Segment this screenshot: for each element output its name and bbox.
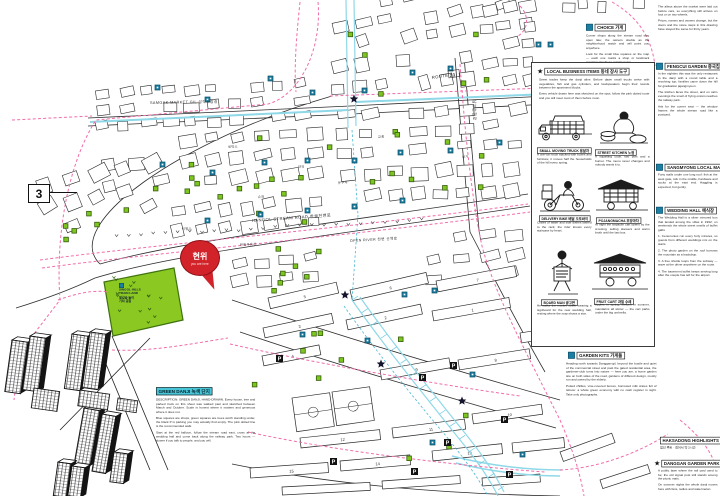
market-poi-icon[interactable]	[656, 164, 663, 171]
poi-icon-dot	[354, 160, 356, 162]
small-map-label: 문구사	[338, 179, 348, 185]
building	[309, 197, 321, 207]
tree-icon	[282, 192, 287, 197]
tree-icon	[316, 376, 321, 381]
column-paragraph: Forty stalls under one long roof: fish a…	[658, 173, 718, 189]
cart-caption: At night the tarpaulin cart opens by the…	[595, 223, 650, 235]
building	[230, 273, 248, 288]
tree-icon	[195, 181, 200, 186]
small-map-label: 교회	[378, 134, 385, 139]
building	[120, 86, 135, 98]
stream-hatch	[488, 473, 494, 477]
building	[433, 190, 448, 199]
building	[218, 221, 232, 233]
building	[360, 129, 372, 137]
building	[63, 193, 82, 212]
building	[95, 89, 109, 99]
building	[205, 152, 222, 167]
parking-letter: P	[452, 364, 456, 370]
poi-icon-dot	[450, 150, 452, 152]
you-are-here-balloon[interactable]: 현위 you are here	[180, 240, 218, 276]
grass-mark	[115, 234, 118, 236]
building	[281, 167, 300, 182]
building	[120, 103, 135, 114]
tree-icon	[87, 211, 92, 216]
building	[375, 78, 387, 90]
building	[272, 81, 282, 90]
tree-icon	[398, 337, 403, 342]
poi-icon-dot	[307, 160, 309, 162]
grass-mark	[112, 276, 115, 278]
building	[402, 0, 414, 2]
grass-mark	[322, 224, 325, 226]
small-map-label: 한일부동산	[240, 241, 257, 247]
building	[479, 229, 496, 240]
building	[502, 74, 517, 86]
building	[229, 169, 249, 186]
small-map-label: 세탁소	[228, 143, 238, 149]
tree-icon	[407, 456, 412, 461]
tree-icon	[272, 288, 277, 293]
building	[102, 180, 116, 193]
walking-route	[230, 344, 520, 396]
building	[503, 183, 520, 199]
building	[140, 85, 152, 95]
tree-icon	[379, 92, 384, 97]
grass-mark	[237, 230, 240, 232]
star-icon	[341, 291, 350, 299]
sheet-number-leader-line	[49, 192, 77, 193]
tree-icon	[318, 331, 323, 336]
board-man-illustration	[544, 249, 580, 297]
section-title: SANGMYONG LOCAL MARKET 재래시장	[665, 164, 720, 171]
tree-icon	[276, 247, 281, 252]
section-wedding-body: The Wedding Hall is a silver mirrored bo…	[658, 216, 720, 319]
apartment-towers-inset	[5, 328, 168, 496]
tree-icon	[299, 175, 304, 180]
building	[128, 157, 145, 170]
column-paragraph: The Wedding Hall is a silver mirrored bo…	[658, 216, 718, 232]
building	[331, 84, 344, 94]
building	[232, 257, 247, 269]
park-label: SINGOL HILLS TRAIN LAND 철길숲 놀이 기차 공원	[119, 283, 179, 316]
danggan-park-body: A public lawn where the rail yard used t…	[658, 469, 720, 496]
building	[482, 102, 495, 113]
business-intro-paragraph: Street trades keep the danji alive. Befo…	[539, 78, 649, 90]
tree-icon	[316, 249, 321, 254]
poi-icon-dot	[207, 220, 209, 222]
parking-letter: P	[421, 376, 425, 382]
star-icon: ★	[654, 460, 660, 467]
tree-icon	[484, 78, 489, 83]
building	[503, 58, 518, 66]
building	[361, 147, 374, 158]
section-market-body: Forty stalls under one long roof: fish a…	[658, 173, 720, 203]
poi-icon-dot	[157, 87, 159, 89]
poi-icon-dot	[402, 200, 404, 202]
building	[578, 0, 588, 9]
building	[162, 85, 175, 93]
building	[140, 198, 157, 214]
tree-icon	[395, 132, 400, 137]
stream-hatch	[391, 347, 397, 351]
building	[118, 121, 128, 131]
building	[356, 33, 370, 47]
tree-icon	[124, 208, 129, 213]
building	[447, 4, 463, 17]
star-icon: ★	[537, 68, 543, 75]
tree-icon	[237, 186, 242, 191]
garden-kits-paragraph: Potted chillies, vine-covered fences, bo…	[566, 385, 657, 397]
low-block	[31, 388, 60, 411]
building	[456, 188, 469, 198]
building	[114, 161, 131, 177]
wedding-hall-poi-icon[interactable]	[656, 207, 663, 214]
building	[194, 201, 212, 212]
tree-icon	[301, 349, 306, 354]
poi-icon-dot	[400, 152, 402, 154]
poi-icon-dot	[499, 142, 501, 144]
fruit-cart-illustration	[590, 249, 650, 295]
building	[434, 105, 449, 117]
tree-icon	[293, 264, 298, 269]
section-title: FENGCUI GARDEN 중국집	[665, 63, 720, 70]
tree-icon	[218, 195, 223, 200]
grass-mark	[396, 221, 399, 223]
danji-note-title: GREEN DANJI 녹색 단지	[156, 387, 212, 395]
playground-court	[332, 387, 374, 426]
building	[504, 229, 523, 242]
map-sheet-number: 3	[28, 184, 50, 203]
route-number: 23	[449, 72, 456, 78]
stream-dashed	[352, 215, 358, 300]
building	[257, 275, 272, 287]
poi-icon-dot	[354, 206, 356, 208]
poi-icon-dot	[450, 68, 452, 70]
building	[377, 14, 391, 24]
building	[336, 128, 348, 140]
building	[285, 198, 302, 213]
poi-icon-dot	[538, 44, 540, 46]
building	[307, 147, 324, 160]
grass-mark	[335, 223, 338, 225]
building	[153, 174, 170, 187]
building	[184, 85, 200, 97]
building	[418, 74, 431, 90]
poi-icon-dot	[162, 164, 164, 166]
garden-poi-icon[interactable]	[568, 352, 575, 359]
parking-letter: P	[413, 470, 417, 476]
building	[255, 259, 270, 269]
column-paragraph: Prices, names and owners change, but the…	[658, 19, 718, 31]
building	[307, 166, 323, 180]
tree-icon	[370, 179, 375, 184]
you-are-here-korean: 현위	[193, 251, 208, 262]
building	[449, 23, 466, 37]
highlights-body: 점선 루트 · 걸어서 약 2시간	[660, 446, 720, 456]
hand-drawn-neighborhood-map: 567321498121110151413 PPPPPPPP HANGOL ST…	[0, 0, 720, 496]
poi-icon-dot	[212, 172, 214, 174]
small-map-label: 약국	[298, 164, 305, 169]
stream-hatch	[362, 309, 368, 313]
building	[228, 151, 243, 166]
building	[307, 127, 324, 141]
building	[482, 4, 498, 17]
tree-icon	[327, 145, 332, 150]
apartment-slab	[282, 482, 370, 495]
danji-paragraph: Start at the red balloon, follow the str…	[156, 431, 255, 443]
section-title: DANGGAN GARDEN PARK 공원	[661, 460, 720, 467]
balloon-bubble: 현위 you are here	[180, 240, 220, 276]
bike-caption: Crates of water and side dishes lashed t…	[537, 221, 592, 233]
poi-icon-dot	[364, 90, 366, 92]
star-icon	[458, 397, 467, 405]
building	[294, 96, 311, 106]
building	[280, 130, 297, 139]
walking-route	[58, 291, 108, 300]
building	[251, 82, 265, 93]
building	[459, 51, 472, 64]
grass-mark	[164, 231, 167, 233]
tree-icon	[270, 177, 275, 182]
low-block	[116, 398, 137, 413]
tree-icon	[348, 32, 353, 37]
small-map-label: 이발소	[182, 225, 192, 231]
column-paragraph: Ask for the corner seat — the window fra…	[658, 105, 718, 117]
tree-icon	[304, 274, 309, 279]
walking-route	[40, 204, 528, 260]
apartment-tower	[110, 448, 134, 484]
grass-mark	[347, 223, 350, 225]
building	[633, 0, 644, 8]
walking-route	[12, 116, 92, 120]
poi-icon-dot	[270, 78, 272, 80]
apartment-slab	[512, 438, 565, 453]
garden-kits-title: GARDEN KITS 가게들	[577, 352, 625, 359]
poi-icon-dot	[367, 340, 369, 342]
tree-icon	[189, 162, 194, 167]
tree-icon	[339, 358, 344, 363]
tree-icon	[479, 154, 484, 159]
delivery-bike-illustration	[538, 179, 590, 213]
building	[506, 247, 526, 262]
building	[482, 57, 499, 70]
stream-hatch	[430, 397, 436, 401]
building	[409, 108, 424, 119]
building	[241, 201, 255, 216]
poi-icon-dot	[550, 44, 552, 46]
tree-icon	[257, 136, 262, 141]
column-list-item: 4. The basement buffet keeps serving lon…	[658, 270, 718, 278]
poi-icon-dot	[432, 442, 434, 444]
right-column-top-text: The alleys above the market were laid ou…	[658, 5, 720, 52]
building	[396, 54, 410, 66]
you-are-here-english: you are here	[191, 262, 209, 266]
tree-icon	[409, 177, 414, 182]
poi-icon-dot	[302, 334, 304, 336]
danji-note-body: DESCRIPTION: GREEN DANJI, HAND-DRAWN. Ev…	[156, 398, 316, 474]
poi-icon-dot	[312, 92, 314, 94]
parking-letter: P	[503, 418, 507, 424]
park-name-line4: 기차 공원	[119, 300, 131, 304]
grass-mark	[127, 234, 130, 236]
tree-icon	[153, 186, 158, 191]
stream-hatch	[381, 334, 387, 338]
tree-icon	[72, 229, 77, 234]
building	[522, 39, 534, 48]
building	[435, 126, 451, 137]
danji-paragraph: Blue squares are shops, green squares ar…	[156, 417, 255, 429]
parking-letter: P	[278, 357, 282, 363]
building	[218, 202, 232, 217]
top-note-title: CHOICE 가게	[595, 24, 626, 31]
parking-letter: P	[446, 441, 450, 447]
building	[410, 126, 428, 136]
column-paragraph: In the eighties this was the only restau…	[658, 72, 718, 88]
building	[409, 143, 427, 155]
column-list-item: 2. The photo garden on the roof borrows …	[658, 249, 718, 257]
poi-icon-dot	[404, 294, 406, 296]
building	[459, 123, 474, 134]
building	[281, 147, 296, 160]
tree-icon	[461, 81, 466, 86]
tree-icon	[189, 176, 194, 181]
section-fengcui-body: In the eighties this was the only restau…	[658, 72, 720, 148]
column-paragraph: 점선 루트 · 걸어서 약 2시간	[660, 446, 717, 450]
building	[304, 251, 317, 261]
building	[337, 148, 351, 158]
building	[503, 162, 520, 178]
building	[457, 140, 471, 148]
column-paragraph: The kitchen faces the street, and on cal…	[658, 91, 718, 103]
building	[354, 56, 370, 73]
stream-hatch	[440, 410, 446, 414]
grass-mark	[139, 234, 142, 236]
tree-icon	[363, 53, 368, 58]
vendor-caption: A squatting cook, two pots and a burner.…	[595, 155, 650, 167]
moving-truck-illustration	[536, 113, 592, 143]
grass-mark	[420, 218, 423, 220]
building	[453, 254, 469, 263]
street-vendor-illustration	[594, 109, 650, 145]
business-intro-paragraph: Every vehicle drawn here was sketched on…	[539, 92, 649, 100]
building	[484, 139, 498, 150]
building	[598, 1, 607, 12]
building	[355, 17, 373, 29]
column-list-item: 1. Ceremonies run every forty minutes, s…	[658, 235, 718, 247]
shop-poi-icon[interactable]	[586, 24, 593, 31]
vertical-road-label: 남부순환로	[472, 100, 478, 120]
building	[364, 188, 382, 202]
tree-icon	[390, 171, 395, 176]
building	[178, 134, 197, 149]
building	[254, 148, 272, 161]
pojangmacha-illustration	[592, 177, 650, 215]
garden-kits-body: Heading north towards Danggan-gil, beyon…	[566, 362, 712, 422]
building	[427, 254, 441, 265]
building	[279, 255, 294, 265]
building	[508, 140, 521, 148]
tree-icon	[252, 382, 257, 387]
poi-icon-dot	[434, 290, 436, 292]
grass-mark	[383, 221, 386, 223]
building	[424, 11, 439, 25]
boardman-caption: He walks the market street wearing a sig…	[537, 304, 592, 316]
tree-icon	[185, 189, 190, 194]
poi-icon-dot	[260, 214, 262, 216]
star-icon	[377, 360, 386, 368]
building	[88, 189, 105, 205]
tree-icon	[64, 237, 69, 242]
small-map-label: 상가	[462, 154, 469, 159]
parking-letter: P	[332, 460, 336, 466]
garden-kits-paragraph: Heading north towards Danggan-gil, beyon…	[566, 362, 657, 382]
tree-icon	[464, 413, 469, 418]
tree-icon	[254, 184, 259, 189]
building	[207, 118, 221, 128]
building	[331, 58, 349, 73]
poi-icon-dot	[412, 72, 414, 74]
stream-hatch	[459, 435, 465, 439]
building	[496, 21, 511, 31]
poi-icon-dot	[307, 210, 309, 212]
building	[426, 29, 437, 39]
building	[411, 186, 426, 200]
building	[172, 206, 186, 216]
building	[459, 105, 474, 117]
building	[231, 132, 244, 143]
building	[204, 175, 216, 184]
truck-caption: A one-ton truck stacked with boxes and f…	[537, 153, 592, 165]
grass-mark	[152, 232, 155, 234]
building	[97, 105, 110, 116]
tree-icon	[443, 186, 448, 191]
tree-icon	[478, 185, 483, 190]
building	[205, 85, 215, 92]
apartment-slab	[382, 476, 460, 489]
poi-icon-dot	[264, 162, 266, 164]
road-line	[16, 278, 95, 308]
column-list-item: 3. A free shuttle loops from the subway …	[658, 259, 718, 267]
column-paragraph: A public lawn where the rail yard used t…	[658, 469, 718, 481]
grass-mark	[408, 219, 411, 221]
apartment-slab	[600, 465, 650, 489]
building	[205, 132, 218, 142]
river-walk-label: OPEN RIVER 천변 산책로	[350, 236, 398, 243]
building	[361, 107, 380, 120]
column-paragraph: On summer nights the whole danji moves h…	[658, 483, 718, 491]
tree-icon	[312, 331, 317, 336]
building	[62, 171, 80, 186]
building	[453, 231, 466, 242]
building	[400, 28, 417, 44]
building	[340, 169, 355, 181]
apartment-slab	[560, 433, 615, 461]
stream-hatch	[401, 359, 407, 363]
tree-icon	[278, 281, 283, 286]
tree-icon	[63, 224, 68, 229]
poi-icon-dot	[472, 374, 474, 376]
local-business-panel: ★LOCAL BUSINESS ITEMS 동네 장사 도구 Street tr…	[531, 62, 655, 347]
column-paragraph: The alleys above the market were laid ou…	[658, 5, 718, 17]
restaurant-poi-icon[interactable]	[656, 63, 663, 70]
building	[503, 36, 520, 49]
building	[379, 0, 392, 7]
danji-paragraph: DESCRIPTION: GREEN DANJI, HAND-DRAWN. Ev…	[156, 398, 255, 414]
tree-icon	[95, 222, 100, 227]
grass-mark	[261, 227, 264, 229]
building	[116, 184, 133, 200]
